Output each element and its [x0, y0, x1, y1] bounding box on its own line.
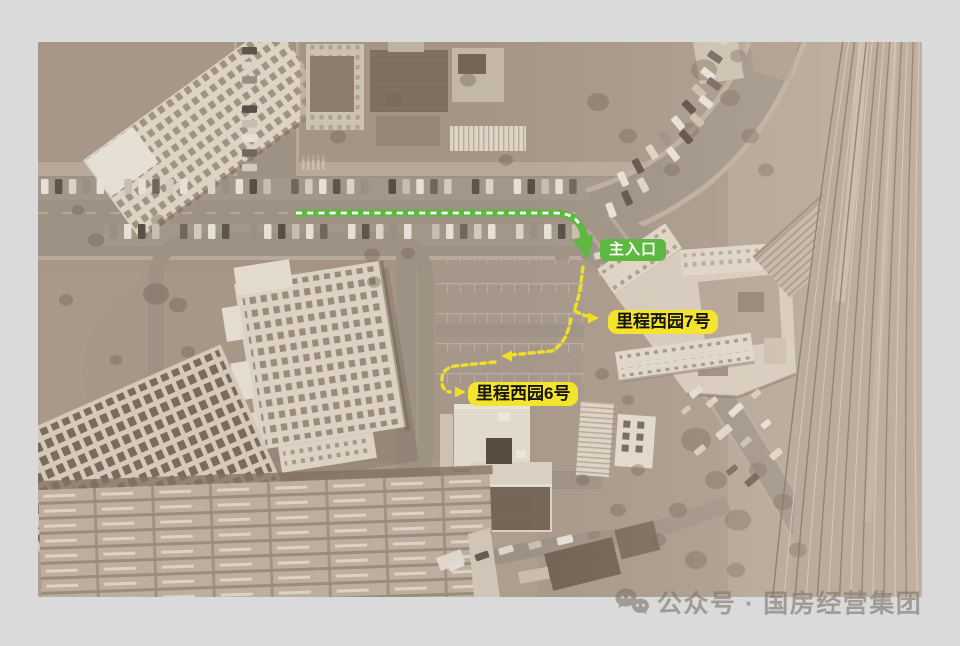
- label-building-7: 里程西园7号: [608, 310, 718, 334]
- label-main-entrance: 主入口: [600, 239, 666, 261]
- aerial-photo: 主入口 里程西园7号 里程西园6号: [38, 42, 922, 597]
- wechat-icon: [614, 587, 650, 618]
- label-building-6: 里程西园6号: [468, 382, 578, 406]
- watermark-text: 公众号 · 国房经营集团: [657, 584, 922, 620]
- page-background: 主入口 里程西园7号 里程西园6号 公众号 · 国房经营集团: [0, 0, 960, 646]
- watermark: 公众号 · 国房经营集团: [614, 584, 922, 620]
- aerial-scene: [38, 42, 922, 597]
